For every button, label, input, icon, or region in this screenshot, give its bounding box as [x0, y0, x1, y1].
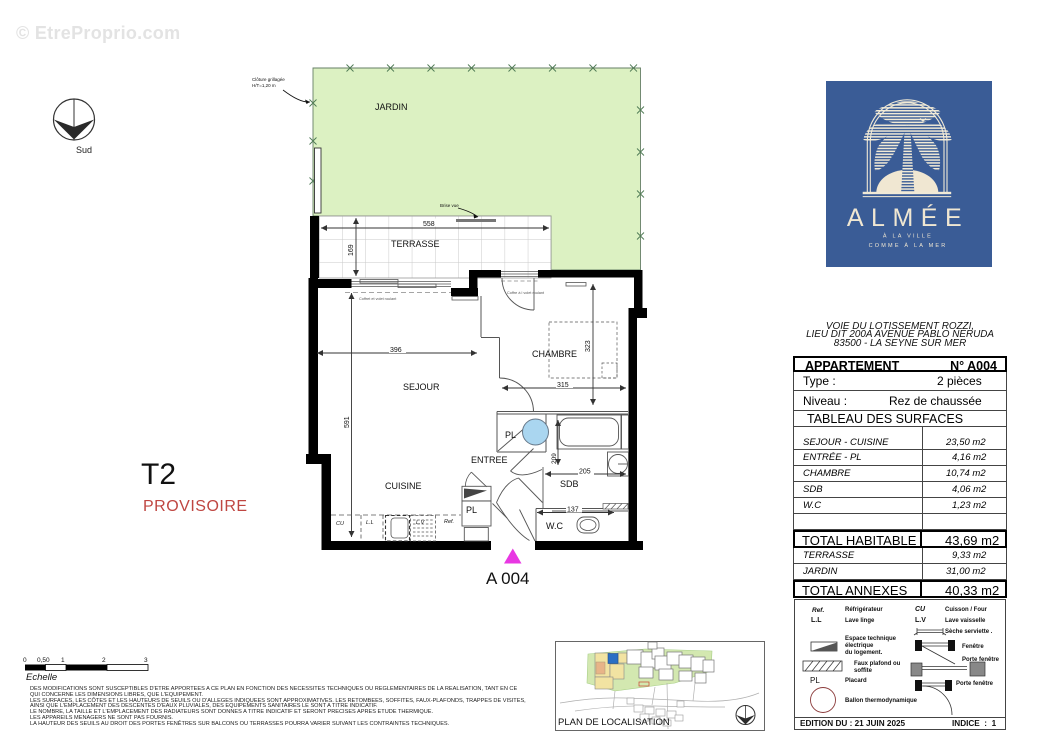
svg-text:1: 1	[61, 657, 65, 664]
svg-text:PL: PL	[466, 505, 477, 515]
svg-text:CU: CU	[336, 521, 344, 527]
svg-text:2: 2	[102, 657, 106, 664]
svg-text:CUISINE: CUISINE	[385, 481, 422, 491]
svg-text:ALMÉE: ALMÉE	[847, 203, 969, 232]
svg-text:558: 558	[423, 221, 435, 228]
svg-text:H/T=1,20 m: H/T=1,20 m	[252, 83, 276, 88]
svg-text:L.L: L.L	[366, 520, 374, 526]
svg-text:137: 137	[567, 507, 579, 514]
svg-text:591: 591	[344, 416, 351, 428]
svg-text:315: 315	[557, 382, 569, 389]
svg-text:3: 3	[144, 657, 148, 664]
svg-text:Sud: Sud	[76, 145, 92, 155]
svg-text:Brise vue: Brise vue	[440, 203, 459, 208]
svg-text:ENTREE: ENTREE	[471, 455, 508, 465]
svg-text:209: 209	[551, 453, 558, 464]
svg-text:Clôture grillagée: Clôture grillagée	[252, 77, 285, 82]
svg-text:Coffre à l volet roulant: Coffre à l volet roulant	[507, 291, 545, 295]
svg-text:À LA VILLE: À LA VILLE	[883, 233, 933, 240]
svg-text:205: 205	[579, 469, 591, 476]
svg-text:0: 0	[23, 657, 27, 664]
svg-text:Coffret et volet roulant: Coffret et volet roulant	[359, 297, 397, 301]
svg-text:L.V: L.V	[416, 520, 426, 526]
svg-text:SDB: SDB	[560, 479, 579, 489]
svg-text:CHAMBRE: CHAMBRE	[532, 349, 577, 359]
svg-text:COMME À LA MER: COMME À LA MER	[869, 242, 948, 249]
svg-text:169: 169	[348, 244, 355, 256]
svg-text:396: 396	[390, 347, 402, 354]
svg-text:JARDIN: JARDIN	[375, 102, 408, 112]
svg-text:0,50: 0,50	[37, 657, 50, 664]
svg-text:SEJOUR: SEJOUR	[403, 382, 440, 392]
svg-text:Ref.: Ref.	[444, 519, 454, 525]
svg-text:W.C: W.C	[546, 521, 563, 531]
svg-text:323: 323	[585, 340, 592, 352]
svg-text:TERRASSE: TERRASSE	[391, 239, 440, 249]
svg-text:PL: PL	[505, 430, 516, 440]
